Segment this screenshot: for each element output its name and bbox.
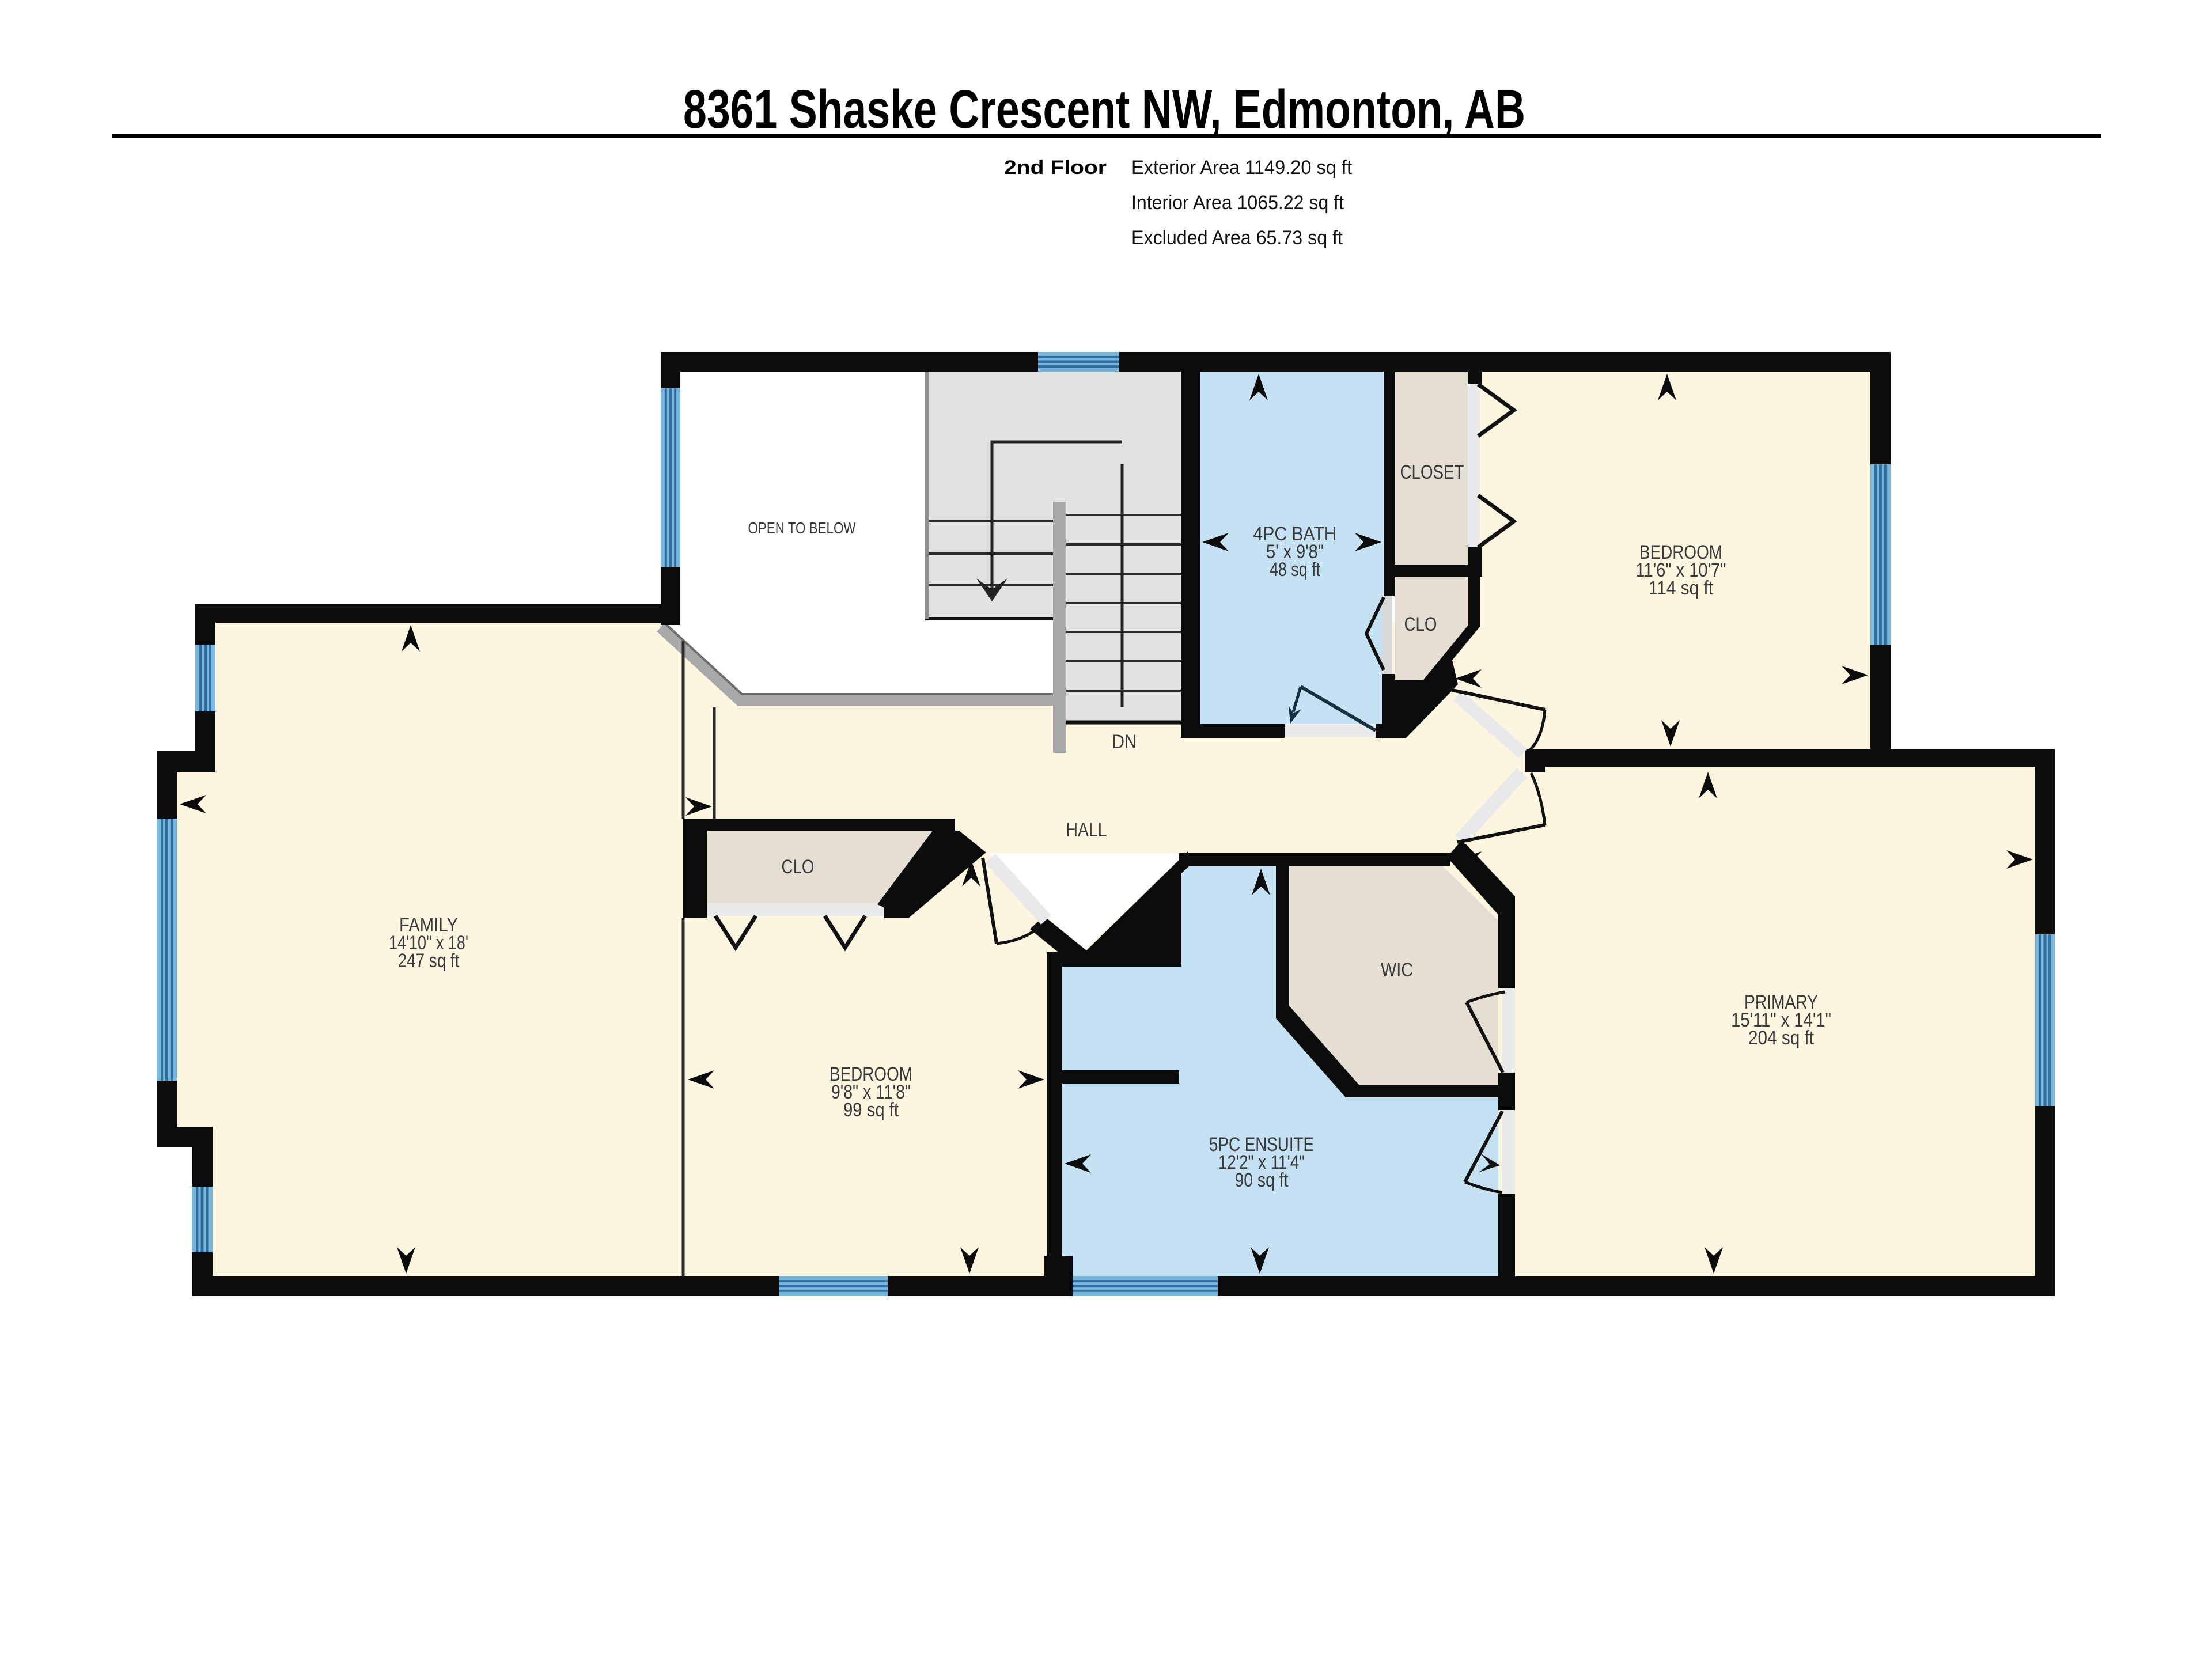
svg-text:48 sq ft: 48 sq ft [1270, 559, 1320, 581]
svg-text:2nd Floor: 2nd Floor [1004, 157, 1107, 179]
svg-text:CLOSET: CLOSET [1400, 461, 1464, 483]
svg-text:Excluded Area 65.73 sq ft: Excluded Area 65.73 sq ft [1131, 227, 1343, 249]
svg-text:99 sq ft: 99 sq ft [843, 1099, 899, 1121]
svg-text:247 sq ft: 247 sq ft [398, 950, 460, 972]
svg-text:CLO: CLO [1404, 613, 1437, 635]
svg-text:HALL: HALL [1066, 819, 1107, 841]
svg-text:8361 Shaske Crescent NW, Edmon: 8361 Shaske Crescent NW, Edmonton, AB [683, 79, 1525, 140]
svg-text:OPEN TO BELOW: OPEN TO BELOW [748, 519, 856, 537]
svg-text:90 sq ft: 90 sq ft [1235, 1169, 1289, 1191]
svg-text:WIC: WIC [1381, 959, 1413, 981]
svg-text:Exterior Area 1149.20 sq ft: Exterior Area 1149.20 sq ft [1131, 157, 1353, 179]
svg-text:114 sq ft: 114 sq ft [1649, 577, 1713, 599]
svg-text:CLO: CLO [782, 856, 815, 878]
svg-text:Interior Area 1065.22 sq ft: Interior Area 1065.22 sq ft [1131, 192, 1344, 214]
svg-text:204 sq ft: 204 sq ft [1748, 1027, 1814, 1049]
svg-text:DN: DN [1112, 731, 1137, 753]
